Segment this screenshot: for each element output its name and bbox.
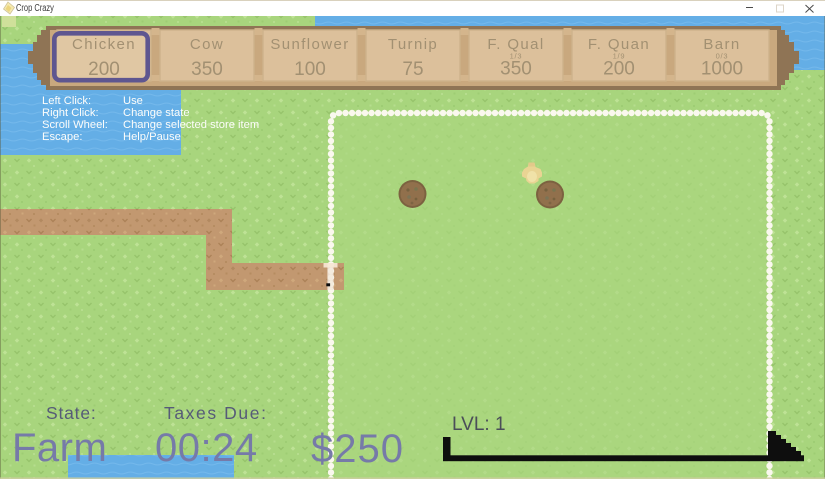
svg-text:Sunflower: Sunflower	[270, 36, 349, 53]
svg-text:F. Qual: F. Qual	[487, 36, 544, 53]
svg-text:Farm: Farm	[12, 426, 107, 470]
svg-text:Use: Use	[123, 95, 143, 107]
svg-text:$250: $250	[311, 427, 404, 471]
svg-text:Change state: Change state	[123, 107, 190, 119]
svg-text:Cow: Cow	[190, 36, 224, 53]
svg-text:State:: State:	[46, 403, 97, 423]
svg-text:LVL: 1: LVL: 1	[452, 414, 506, 435]
svg-text:100: 100	[294, 59, 326, 80]
svg-text:Right Click:: Right Click:	[42, 107, 99, 119]
svg-text:Left Click:: Left Click:	[42, 95, 91, 107]
svg-text:1/9: 1/9	[613, 52, 626, 61]
svg-text:F. Quan: F. Quan	[588, 36, 650, 53]
svg-text:Turnip: Turnip	[388, 36, 438, 53]
svg-text:1000: 1000	[701, 59, 743, 80]
svg-text:75: 75	[402, 59, 423, 80]
svg-text:350: 350	[191, 59, 223, 80]
svg-text:Barn: Barn	[703, 36, 740, 53]
svg-text:1/3: 1/3	[510, 52, 523, 61]
svg-text:Scroll Wheel:: Scroll Wheel:	[42, 119, 108, 131]
svg-text:Chicken: Chicken	[72, 36, 136, 53]
svg-text:Escape:: Escape:	[42, 131, 82, 143]
svg-text:00:24: 00:24	[155, 426, 258, 470]
svg-text:350: 350	[500, 59, 532, 80]
svg-text:0/3: 0/3	[716, 52, 729, 61]
svg-text:Taxes Due:: Taxes Due:	[164, 403, 268, 423]
svg-text:Change selected store item: Change selected store item	[123, 119, 259, 131]
svg-text:200: 200	[603, 59, 635, 80]
svg-text:Help/Pause: Help/Pause	[123, 131, 181, 143]
svg-text:200: 200	[88, 59, 120, 80]
